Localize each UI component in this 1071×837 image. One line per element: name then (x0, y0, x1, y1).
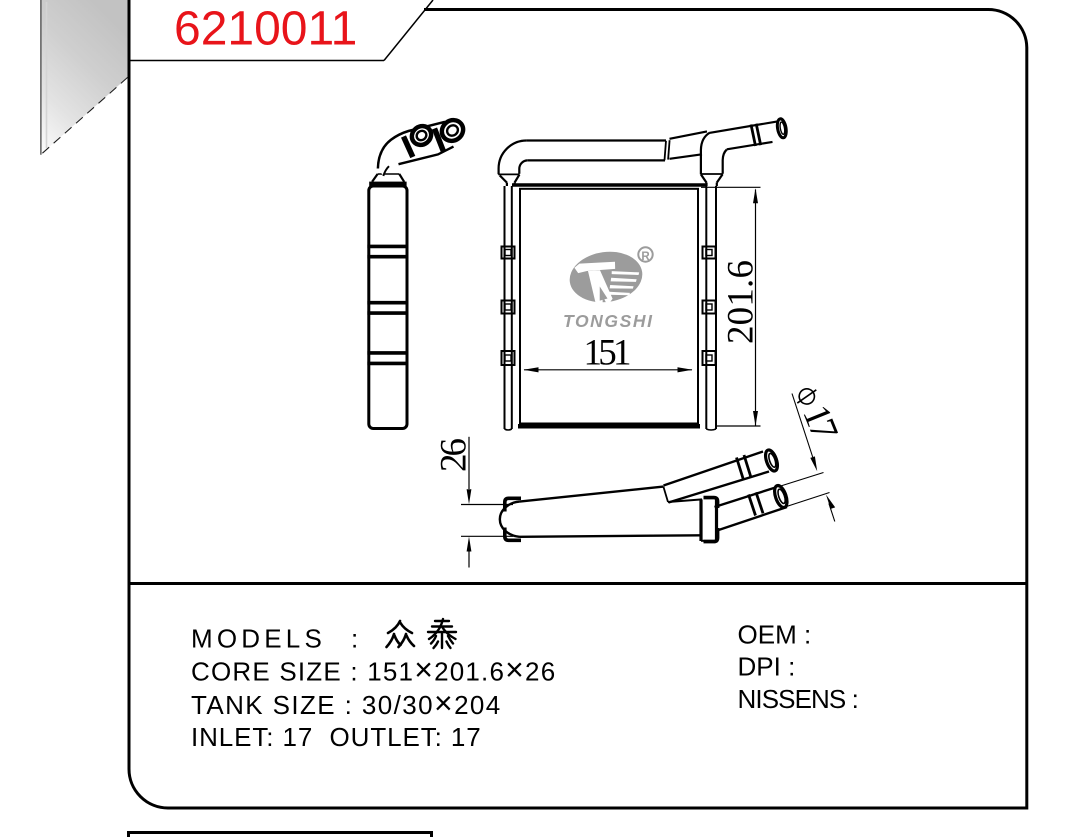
svg-text:INLET: 17 OUTLET: 17: INLET: 17 OUTLET: 17 (191, 722, 482, 752)
svg-text:201.6: 201.6 (721, 260, 762, 344)
svg-text:26: 26 (434, 438, 475, 472)
svg-text:17: 17 (794, 399, 846, 446)
svg-text:OEM :: OEM : (738, 620, 812, 650)
svg-text:NISSENS :: NISSENS : (738, 684, 859, 714)
svg-text:MODELS: MODELS (191, 624, 326, 654)
svg-text::: : (351, 624, 358, 654)
svg-text:TANK SIZE : 30/30×204: TANK SIZE : 30/30×204 (191, 685, 502, 721)
svg-text:6210011: 6210011 (174, 3, 357, 56)
svg-text:151: 151 (584, 333, 632, 374)
svg-text:R: R (641, 251, 650, 263)
svg-text:DPI :: DPI : (738, 652, 796, 682)
svg-text:CORE SIZE : 151×201.6×26: CORE SIZE : 151×201.6×26 (191, 652, 556, 688)
svg-text:TONGSHI: TONGSHI (563, 311, 654, 331)
